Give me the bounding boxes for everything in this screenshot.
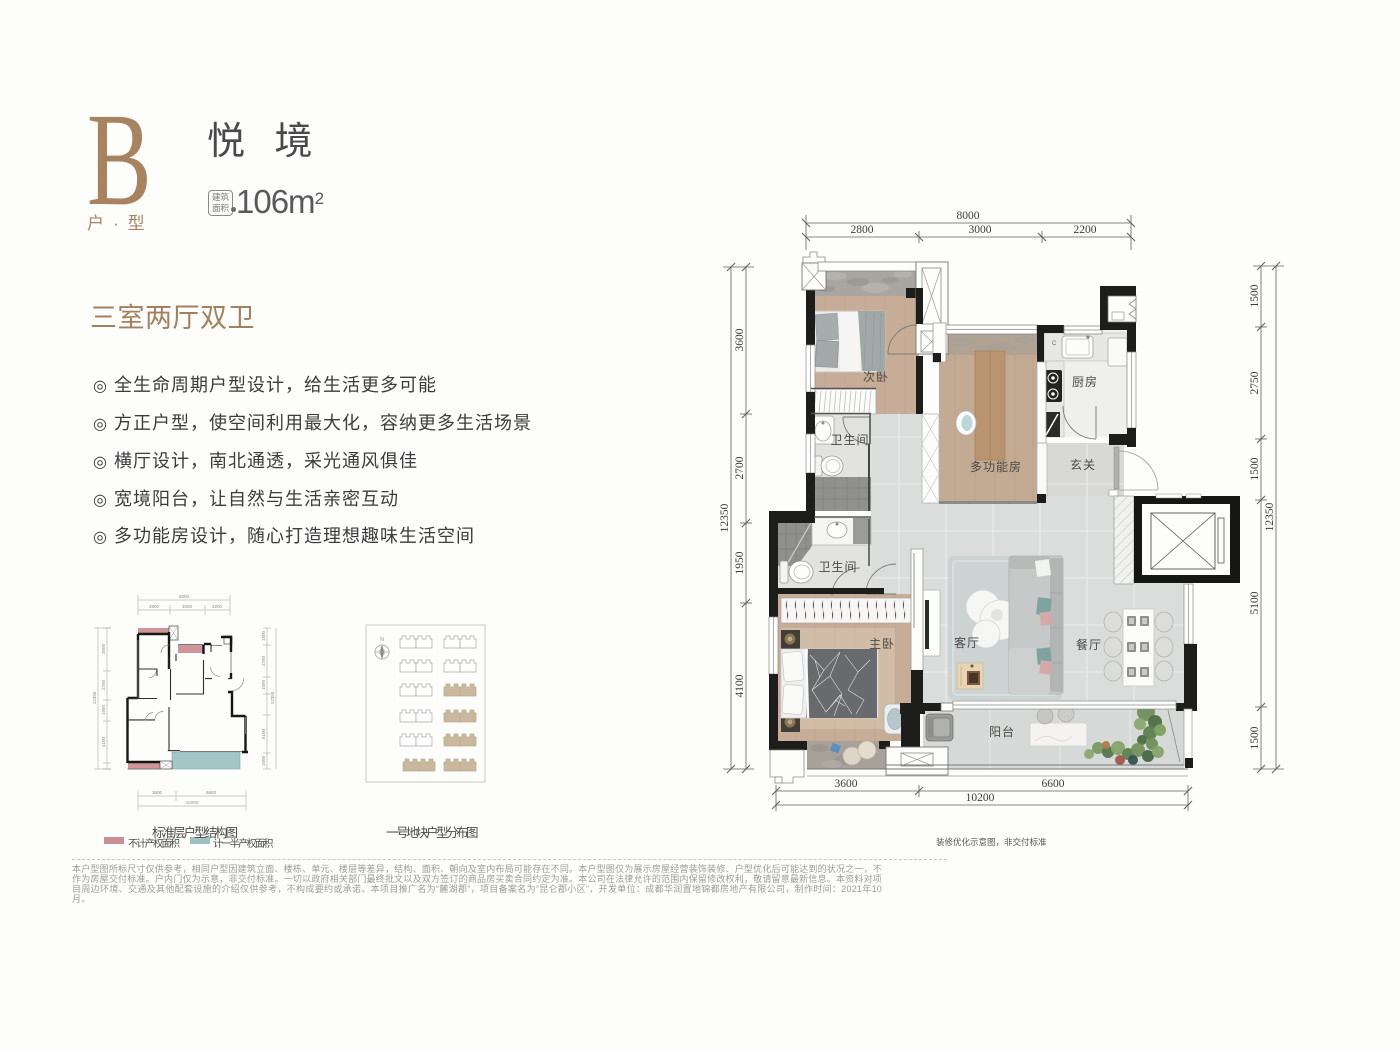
svg-text:阳台: 阳台 [989, 724, 1015, 739]
svg-text:玄关: 玄关 [1070, 457, 1096, 472]
svg-text:3600: 3600 [835, 778, 858, 790]
svg-text:4100: 4100 [101, 736, 106, 747]
svg-text:6600: 6600 [1042, 778, 1065, 790]
svg-text:2750: 2750 [1249, 371, 1261, 394]
svg-text:10200: 10200 [966, 792, 995, 804]
svg-text:12350: 12350 [92, 691, 97, 704]
svg-text:1500: 1500 [1249, 457, 1261, 480]
svg-text:餐厅: 餐厅 [1076, 637, 1102, 652]
svg-text:卫生间: 卫生间 [818, 560, 857, 574]
svg-text:1950: 1950 [734, 551, 746, 574]
svg-text:12350: 12350 [719, 503, 731, 532]
svg-text:8000: 8000 [179, 594, 190, 599]
svg-text:2800: 2800 [149, 604, 160, 609]
svg-text:主卧: 主卧 [869, 637, 895, 651]
svg-text:1500: 1500 [1249, 284, 1261, 307]
svg-text:2750: 2750 [261, 655, 266, 666]
svg-text:3000: 3000 [182, 604, 193, 609]
svg-text:2200: 2200 [212, 604, 223, 609]
svg-text:1500: 1500 [261, 755, 266, 766]
svg-text:4100: 4100 [734, 674, 746, 697]
svg-text:5100: 5100 [1249, 591, 1261, 614]
svg-text:2700: 2700 [101, 679, 106, 690]
svg-text:1500: 1500 [1249, 726, 1261, 749]
svg-text:12350: 12350 [1264, 502, 1276, 531]
svg-text:3600: 3600 [152, 790, 163, 795]
svg-text:6600: 6600 [206, 790, 217, 795]
svg-text:2200: 2200 [1074, 224, 1097, 236]
svg-text:2700: 2700 [734, 456, 746, 479]
svg-text:12350: 12350 [270, 691, 275, 704]
svg-text:厨房: 厨房 [1072, 374, 1098, 389]
svg-text:3000: 3000 [969, 224, 992, 236]
svg-text:1950: 1950 [101, 704, 106, 715]
svg-text:客厅: 客厅 [954, 635, 980, 650]
svg-text:10200: 10200 [186, 800, 199, 805]
svg-text:3600: 3600 [734, 328, 746, 351]
svg-text:8000: 8000 [957, 210, 980, 222]
svg-text:5100: 5100 [261, 728, 266, 739]
svg-text:多功能房: 多功能房 [970, 459, 1022, 474]
svg-text:次卧: 次卧 [863, 370, 889, 384]
svg-text:2800: 2800 [851, 224, 874, 236]
svg-text:1500: 1500 [261, 630, 266, 641]
svg-text:1500: 1500 [261, 679, 266, 690]
svg-text:卫生间: 卫生间 [830, 433, 869, 447]
svg-text:N: N [380, 637, 384, 643]
svg-text:3600: 3600 [101, 643, 106, 654]
svg-text:C: C [1052, 341, 1057, 347]
